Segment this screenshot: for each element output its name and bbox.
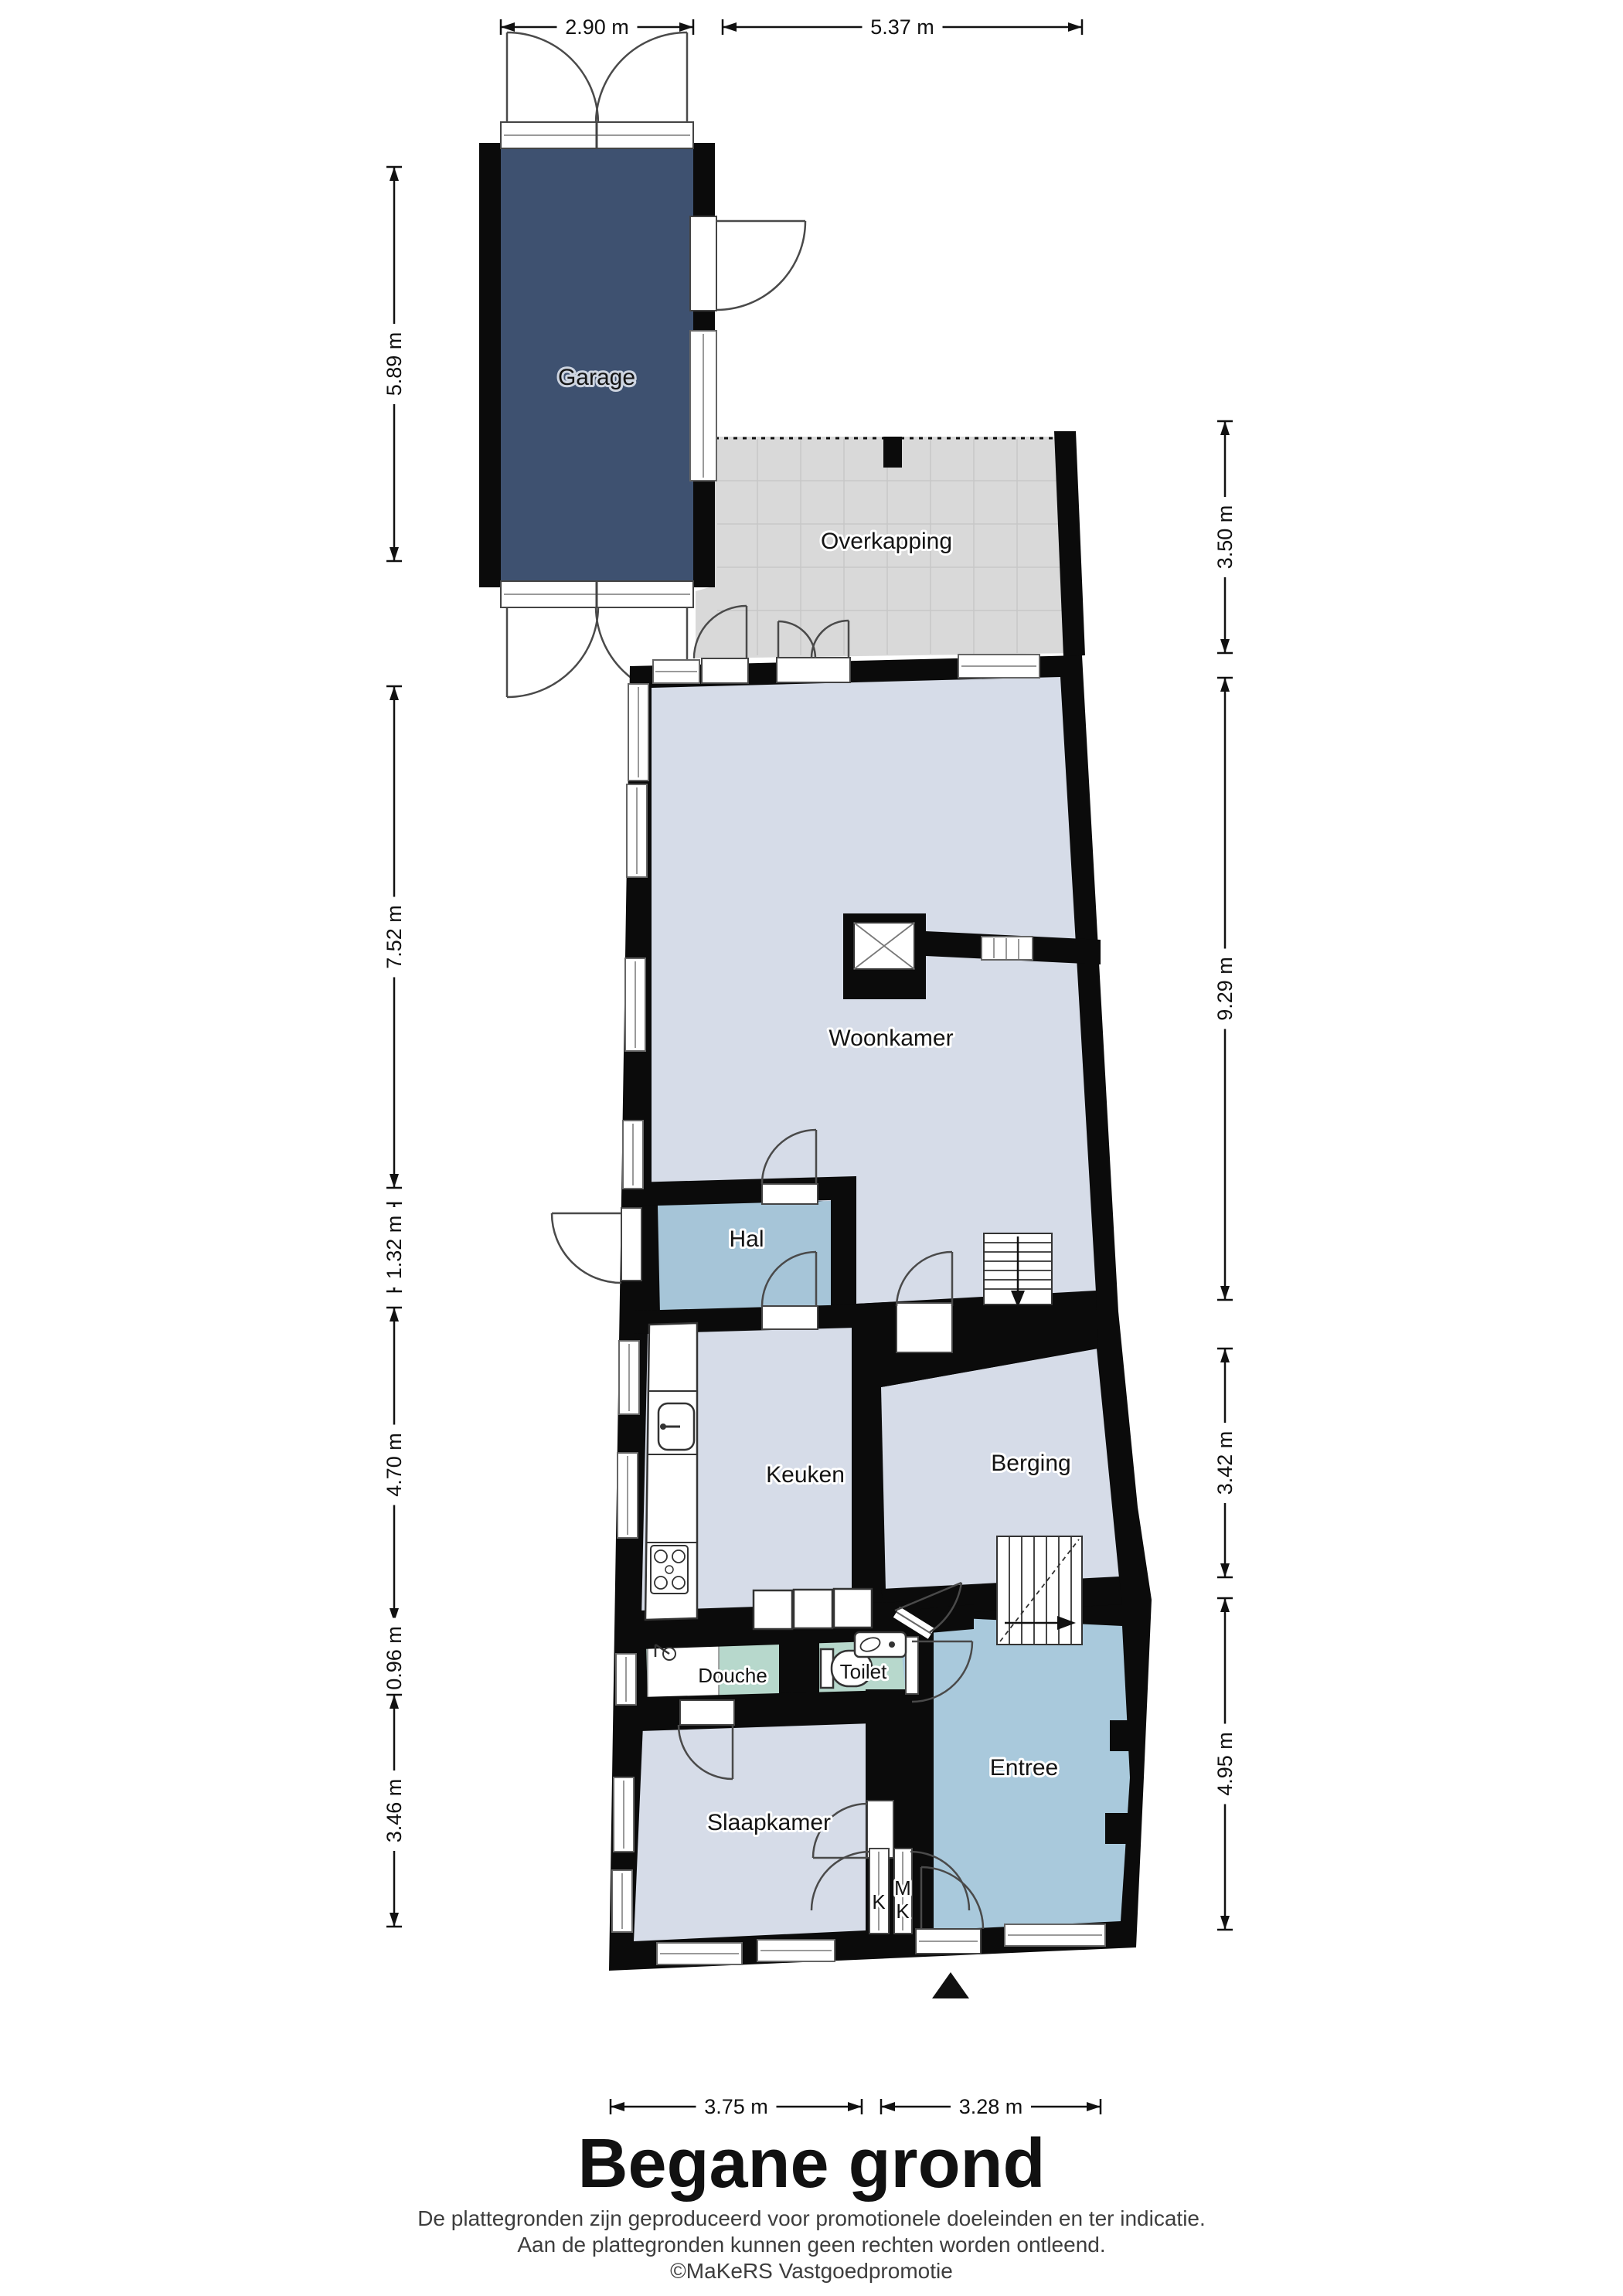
dimension-dims-bottom-1: 3.28 m (881, 2094, 1101, 2119)
floor-plan-page: Garage Overkapping Woonkamer Hal Keuken … (0, 0, 1623, 2296)
dimension-label: 4.95 m (1213, 1732, 1237, 1796)
disclaimer-line-1: De plattegronden zijn geproduceerd voor … (417, 2206, 1206, 2230)
dimension-label: 3.46 m (383, 1779, 406, 1843)
dimension-label: 9.29 m (1213, 957, 1237, 1021)
meterkast-m-label: M (894, 1876, 911, 1900)
hal-front-door (552, 1208, 641, 1283)
keuken-label: Keuken (766, 1462, 845, 1488)
floor-plan-svg: Garage Overkapping Woonkamer Hal Keuken … (0, 0, 1623, 2296)
dimension-label: 3.28 m (959, 2095, 1023, 2118)
window (614, 1777, 634, 1852)
dimension-label: 3.42 m (1213, 1431, 1237, 1495)
window (627, 784, 647, 877)
dimension-dims-right-2: 3.42 m (1213, 1349, 1237, 1577)
top-window-a (653, 660, 699, 683)
stairs-woonkamer (984, 1233, 1052, 1308)
entrance-marker-icon (932, 1972, 969, 1998)
dimension-label: 1.32 m (383, 1216, 406, 1280)
window (618, 1453, 638, 1538)
slaapkamer-label: Slaapkamer (707, 1810, 831, 1835)
toilet-label: Toilet (840, 1660, 887, 1683)
hal-label: Hal (729, 1226, 764, 1252)
dimension-dims-right-1: 9.29 m (1213, 678, 1237, 1300)
garage-label: Garage (558, 365, 635, 390)
dimension-label: 2.90 m (565, 15, 629, 39)
dimension-dims-right-3: 4.95 m (1213, 1598, 1237, 1930)
overkapping-post (883, 437, 902, 468)
dimension-dims-left-3: 4.70 m (382, 1308, 407, 1622)
window (628, 684, 648, 781)
dimension-label: 4.70 m (383, 1433, 406, 1497)
dimension-label: 0.96 m (383, 1626, 406, 1690)
dimension-label: 3.50 m (1213, 505, 1237, 570)
entree-label: Entree (990, 1755, 1058, 1781)
kitchen-cabinets (754, 1589, 872, 1629)
berging-label: Berging (991, 1451, 1070, 1476)
dimension-dims-left-0: 5.89 m (382, 167, 407, 561)
garage-side-door (690, 216, 805, 311)
window (623, 1121, 643, 1189)
top-window-b (958, 655, 1039, 678)
overkapping-label: Overkapping (821, 529, 952, 554)
dimension-dims-bottom-0: 3.75 m (611, 2094, 862, 2119)
dimension-dims-right-0: 3.50 m (1213, 421, 1237, 653)
dimension-label: 3.75 m (704, 2095, 768, 2118)
window (657, 1943, 742, 1964)
window (757, 1940, 835, 1961)
toilet-sink-icon (855, 1632, 906, 1657)
copyright-line: ©MaKeRS Vastgoedpromotie (670, 2259, 953, 2283)
kitchen-sink-icon (658, 1403, 694, 1450)
dimension-label: 5.89 m (383, 332, 406, 396)
closet-k-label: K (872, 1890, 886, 1913)
garage-side-window (690, 331, 716, 481)
chimney-flue-icon (854, 923, 914, 969)
dimension-dims-left-5: 3.46 m (382, 1695, 407, 1927)
kitchen-counter (645, 1323, 697, 1620)
stove-icon (651, 1546, 688, 1594)
douche-label: Douche (698, 1664, 767, 1687)
stairs-entree (997, 1536, 1082, 1645)
garage-door-top (501, 32, 693, 148)
dimension-dims-left-2: 1.32 m (382, 1203, 407, 1291)
meterkast-k-label: K (896, 1900, 910, 1923)
dimension-label: 7.52 m (383, 905, 406, 969)
room-hal (658, 1201, 833, 1314)
window (612, 1870, 632, 1932)
entree-wall-stub-2 (1105, 1813, 1131, 1844)
entree-wall-stub-1 (1110, 1720, 1136, 1751)
woonkamer-stub-window (982, 937, 1033, 960)
window (1005, 1924, 1105, 1946)
dimension-dims-left-1: 7.52 m (382, 686, 407, 1188)
disclaimer-line-2: Aan de plattegronden kunnen geen rechten… (517, 2233, 1105, 2257)
woonkamer-label: Woonkamer (829, 1026, 953, 1051)
window (625, 958, 645, 1051)
dimension-dims-top-1: 5.37 m (723, 15, 1082, 39)
dimension-label: 5.37 m (870, 15, 934, 39)
page-title: Begane grond (577, 2125, 1045, 2202)
window (619, 1341, 639, 1414)
window (616, 1654, 636, 1705)
dimension-dims-left-4: 0.96 m (382, 1618, 407, 1699)
